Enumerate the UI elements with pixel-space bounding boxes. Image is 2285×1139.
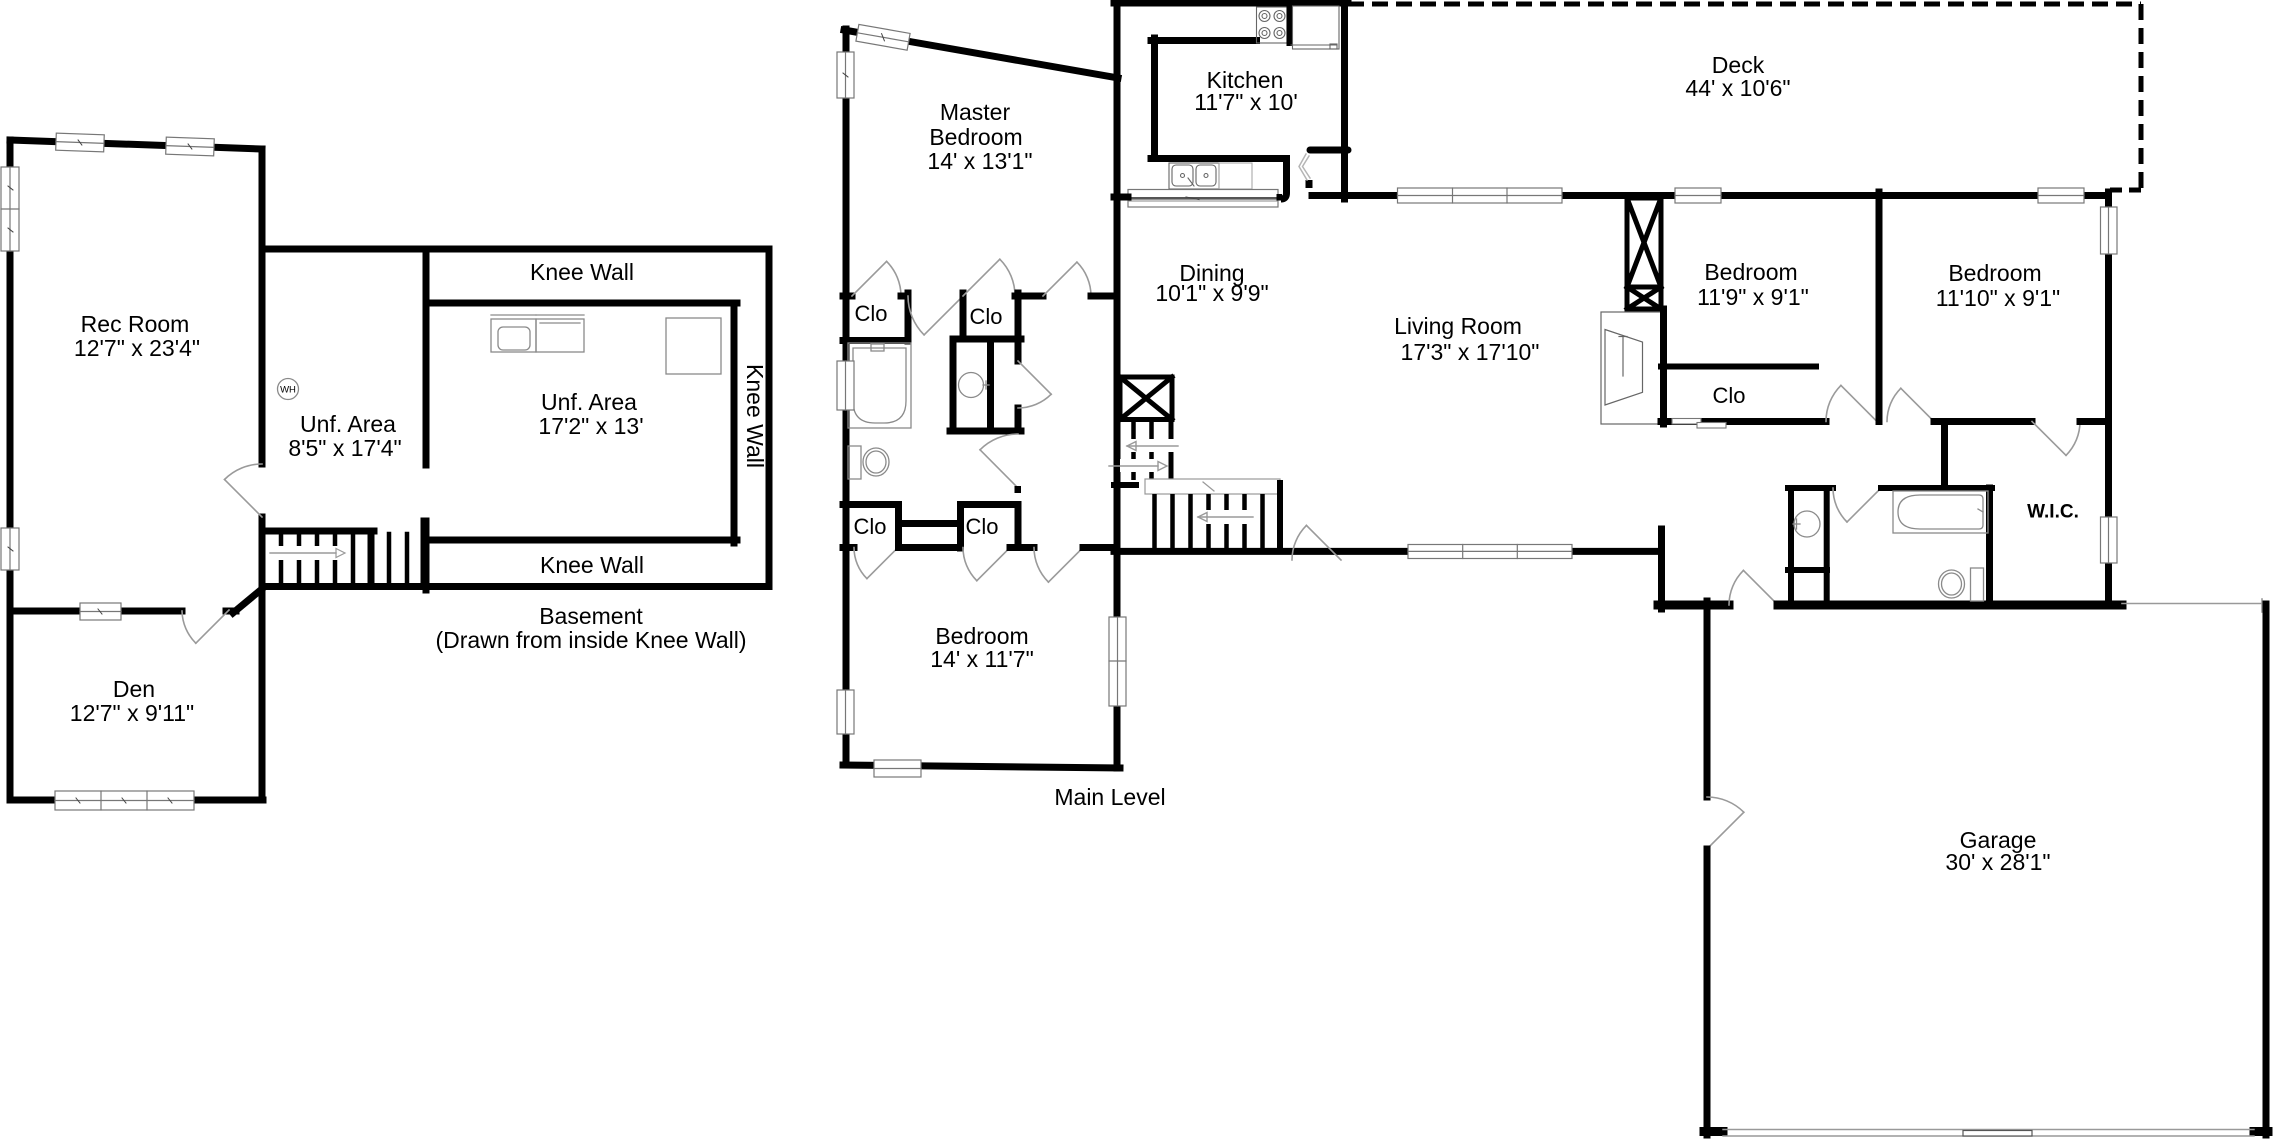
svg-text:Clo: Clo <box>965 514 998 539</box>
svg-text:10'1" x 9'9": 10'1" x 9'9" <box>1155 280 1268 306</box>
svg-text:Clo: Clo <box>969 304 1002 329</box>
svg-text:Bedroom: Bedroom <box>929 124 1022 150</box>
svg-text:W.I.C.: W.I.C. <box>2027 502 2079 523</box>
svg-text:Master: Master <box>940 99 1011 125</box>
svg-text:WH: WH <box>280 385 296 396</box>
svg-text:Unf. Area: Unf. Area <box>300 411 396 437</box>
svg-text:Clo: Clo <box>854 301 887 326</box>
svg-text:14' x 11'7": 14' x 11'7" <box>930 646 1033 672</box>
svg-text:Living Room: Living Room <box>1394 313 1522 339</box>
svg-text:12'7" x 23'4": 12'7" x 23'4" <box>74 335 200 361</box>
svg-text:14' x 13'1": 14' x 13'1" <box>927 148 1032 174</box>
svg-text:Bedroom: Bedroom <box>1704 259 1797 285</box>
svg-text:Knee Wall: Knee Wall <box>540 552 644 578</box>
svg-text:(Drawn from inside Knee Wall): (Drawn from inside Knee Wall) <box>435 627 746 653</box>
svg-text:11'9" x 9'1": 11'9" x 9'1" <box>1697 284 1809 310</box>
svg-text:Bedroom: Bedroom <box>1948 260 2041 286</box>
svg-text:Unf. Area: Unf. Area <box>541 389 637 415</box>
svg-text:17'3" x 17'10": 17'3" x 17'10" <box>1401 339 1540 365</box>
svg-text:Knee Wall: Knee Wall <box>530 259 634 285</box>
svg-text:Rec Room: Rec Room <box>81 311 190 337</box>
svg-text:Clo: Clo <box>1712 383 1745 408</box>
svg-text:30' x 28'1": 30' x 28'1" <box>1945 849 2050 875</box>
svg-text:44' x 10'6": 44' x 10'6" <box>1685 75 1790 101</box>
svg-text:Main Level: Main Level <box>1054 784 1165 810</box>
svg-text:11'10" x 9'1": 11'10" x 9'1" <box>1936 285 2060 311</box>
svg-text:17'2" x 13': 17'2" x 13' <box>538 413 643 439</box>
svg-text:Basement: Basement <box>539 603 643 629</box>
svg-text:Den: Den <box>113 676 155 702</box>
svg-text:12'7" x 9'11": 12'7" x 9'11" <box>70 700 194 726</box>
svg-text:11'7" x 10': 11'7" x 10' <box>1194 89 1297 115</box>
svg-text:8'5" x 17'4": 8'5" x 17'4" <box>288 435 401 461</box>
svg-text:Knee Wall: Knee Wall <box>742 364 768 468</box>
svg-text:Clo: Clo <box>853 514 886 539</box>
